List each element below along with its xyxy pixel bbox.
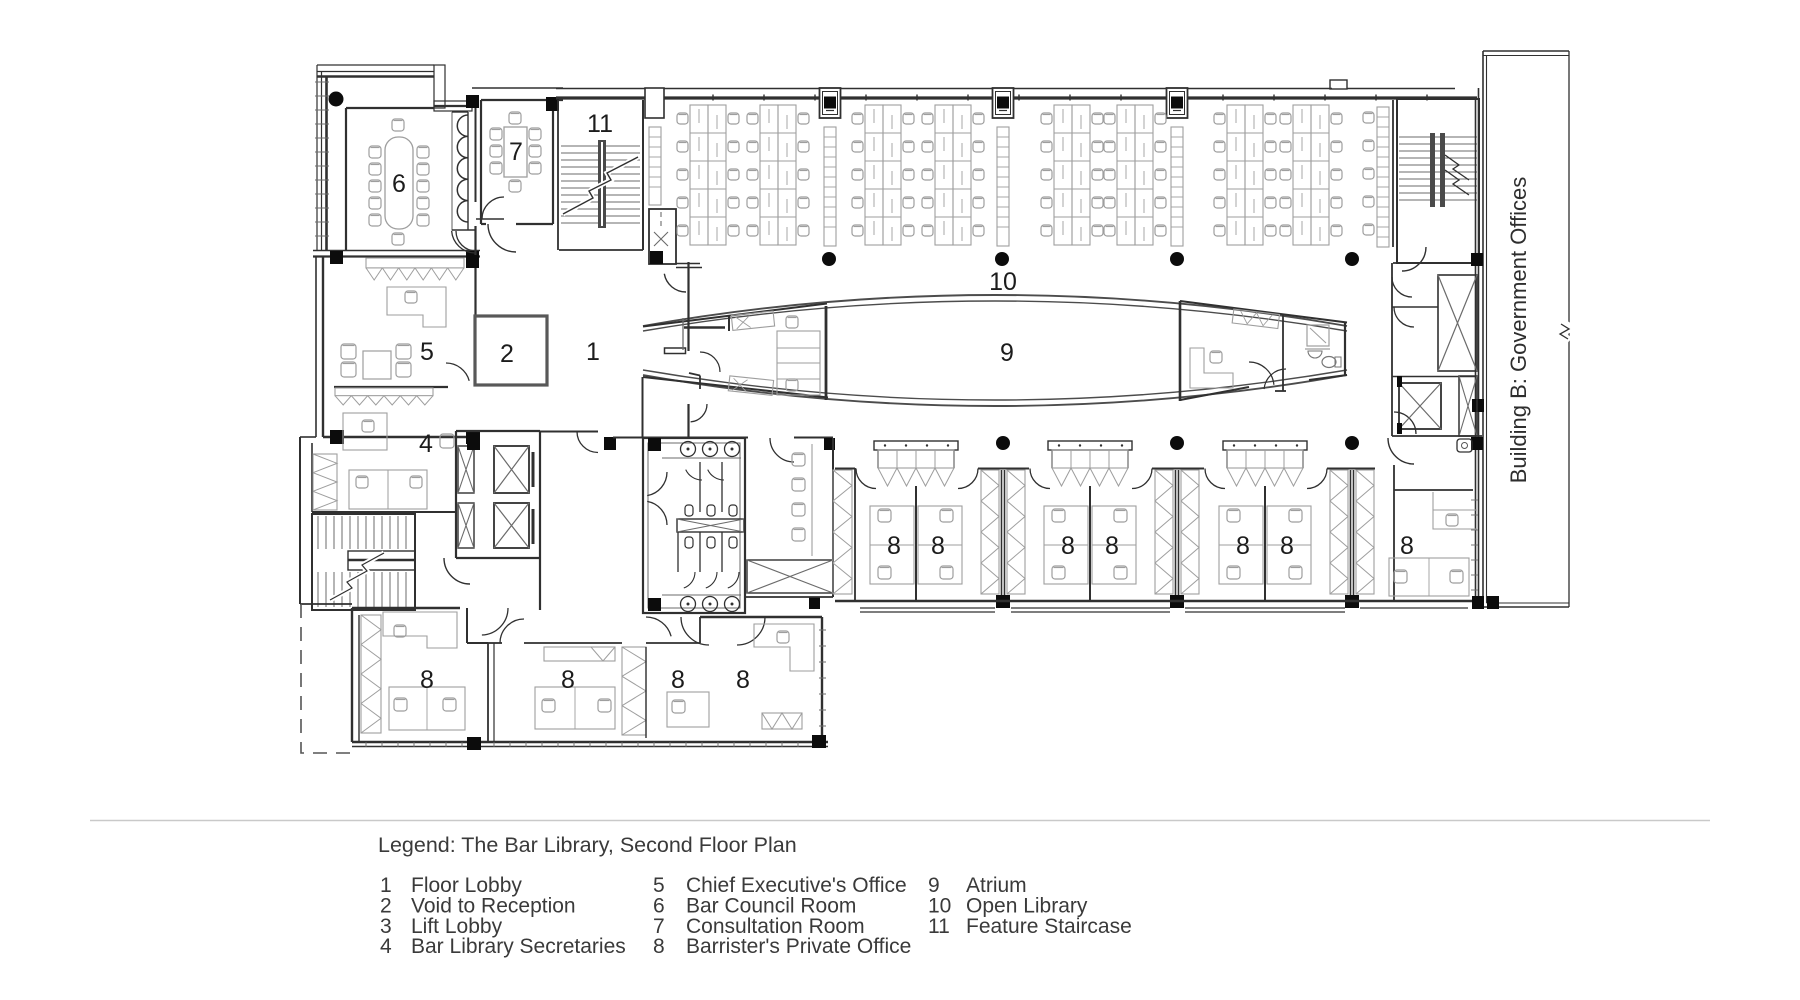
svg-text:8: 8 <box>887 532 901 560</box>
svg-text:Legend: The Bar Library, Secon: Legend: The Bar Library, Second Floor Pl… <box>378 833 797 857</box>
svg-text:2: 2 <box>500 340 514 368</box>
svg-text:8: 8 <box>1280 532 1294 560</box>
svg-text:8: 8 <box>1061 532 1075 560</box>
svg-text:8: 8 <box>653 935 665 958</box>
svg-text:8: 8 <box>736 666 750 694</box>
svg-text:8: 8 <box>561 666 575 694</box>
svg-text:Barrister's Private Office: Barrister's Private Office <box>686 935 911 958</box>
svg-text:9: 9 <box>1000 339 1014 367</box>
svg-text:6: 6 <box>392 170 406 198</box>
svg-text:Feature Staircase: Feature Staircase <box>966 915 1132 938</box>
svg-text:5: 5 <box>420 338 434 366</box>
svg-text:11: 11 <box>928 915 950 938</box>
svg-text:4: 4 <box>419 430 433 458</box>
svg-text:4: 4 <box>380 935 392 958</box>
svg-text:1: 1 <box>586 338 600 366</box>
svg-text:Bar Library Secretaries: Bar Library Secretaries <box>411 935 626 958</box>
svg-text:8: 8 <box>1236 532 1250 560</box>
svg-text:8: 8 <box>1105 532 1119 560</box>
svg-text:10: 10 <box>989 268 1017 296</box>
svg-text:8: 8 <box>931 532 945 560</box>
svg-text:8: 8 <box>420 666 434 694</box>
svg-text:8: 8 <box>671 666 685 694</box>
svg-text:8: 8 <box>1400 532 1414 560</box>
svg-text:11: 11 <box>587 110 613 138</box>
svg-text:7: 7 <box>509 138 523 166</box>
svg-text:Building B: Government Offices: Building B: Government Offices <box>1506 177 1531 484</box>
